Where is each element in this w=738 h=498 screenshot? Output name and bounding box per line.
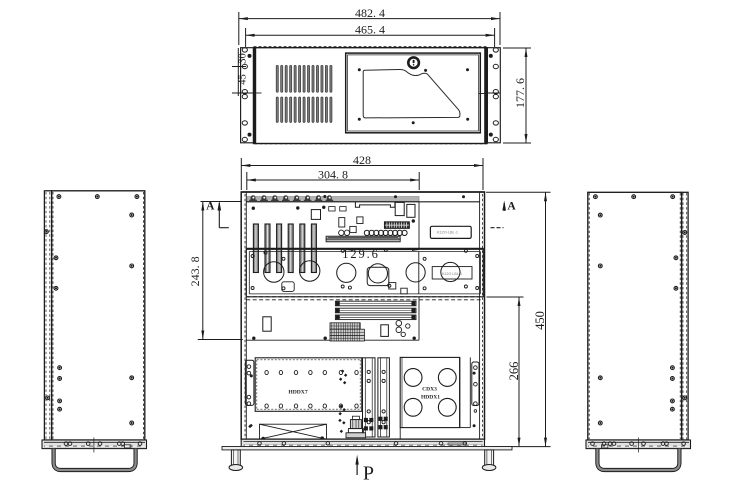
svg-text:243. 8: 243. 8 — [188, 256, 202, 286]
svg-text:177. 6: 177. 6 — [513, 78, 527, 108]
svg-text:P: P — [363, 463, 374, 485]
svg-text:A: A — [206, 201, 215, 213]
svg-text:129.6: 129.6 — [342, 247, 380, 261]
svg-text:K12O·LBL·1: K12O·LBL·1 — [442, 272, 462, 276]
svg-text:482. 4: 482. 4 — [355, 6, 385, 20]
svg-text:266: 266 — [507, 362, 521, 381]
svg-text:K12O·LBL·1: K12O·LBL·1 — [437, 230, 458, 234]
svg-text:30: 30 — [237, 53, 248, 64]
svg-text:465. 4: 465. 4 — [355, 23, 385, 37]
svg-text:A: A — [507, 201, 516, 213]
svg-text:450: 450 — [533, 311, 547, 330]
svg-text:428: 428 — [353, 153, 371, 167]
svg-text:45: 45 — [237, 74, 248, 85]
svg-text:HDDX1: HDDX1 — [421, 395, 440, 401]
svg-text:304. 8: 304. 8 — [318, 167, 348, 181]
svg-text:CDX3: CDX3 — [422, 387, 437, 393]
svg-text:HDDX7: HDDX7 — [288, 389, 307, 395]
